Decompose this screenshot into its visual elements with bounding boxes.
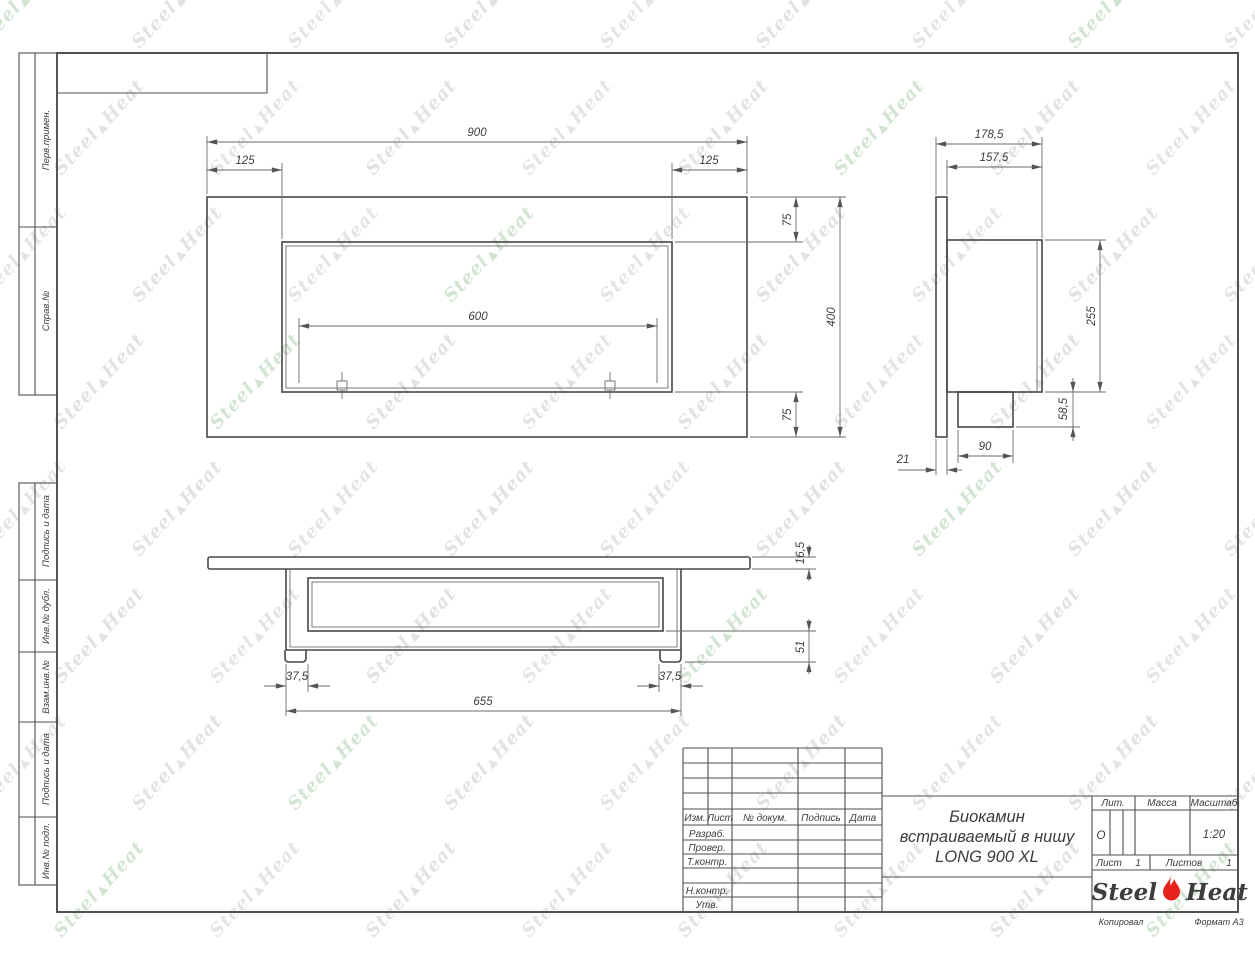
dim-bottom-base-width: 655	[473, 696, 493, 708]
dim-side-body-height: 255	[1086, 306, 1098, 327]
sheet-label: Лист	[1095, 858, 1122, 869]
scale-value: 1:20	[1203, 829, 1226, 841]
row-tkontr: Т.контр.	[687, 857, 727, 868]
dim-side-panel-thickness: 21	[896, 454, 910, 466]
lit-value: О	[1097, 830, 1106, 842]
row-utv: Утв.	[695, 900, 719, 911]
dim-front-left: 125	[235, 155, 255, 167]
margin-label-inv-podl: Инв.№ подл.	[41, 823, 52, 879]
mass-label: Масса	[1147, 798, 1177, 809]
dim-side-spout-height: 58,5	[1058, 397, 1070, 420]
row-razrab: Разраб.	[689, 828, 725, 840]
bottom-view-dimensions: 16,5 51 37,5 37,5 655	[264, 541, 816, 716]
lit-label: Лит.	[1100, 798, 1124, 809]
col-data: Дата	[849, 813, 877, 824]
sheet-value: 1	[1135, 858, 1141, 869]
front-view-dimensions: 900 125 125 600 75 400 75	[207, 127, 846, 437]
dim-front-top: 75	[782, 213, 794, 226]
logo-heat-text: Heat	[1185, 879, 1248, 906]
technical-drawing: Перв.примен. Справ.№ Подпись и дата Инв.…	[0, 0, 1255, 970]
title-block-text: Изм. Лист № докум. Подпись Дата Разраб. …	[684, 797, 1243, 927]
dim-front-height: 400	[826, 307, 838, 327]
dim-front-bottom: 75	[782, 408, 794, 421]
sheets-value: 1	[1226, 858, 1232, 869]
dim-side-spout-width: 90	[979, 441, 992, 453]
sheets-label: Листов	[1165, 858, 1202, 869]
dim-bottom-lower-height: 51	[795, 641, 807, 654]
bottom-view	[208, 557, 750, 662]
dim-side-body-depth: 157,5	[980, 152, 1009, 164]
col-list: Лист	[706, 813, 733, 824]
row-prover: Провер.	[688, 843, 725, 854]
col-izm: Изм.	[684, 813, 705, 824]
drawing-sheet: Steel▲HeatSteel▲HeatSteel▲HeatSteel▲Heat…	[0, 0, 1255, 970]
footer-format: Формат А3	[1194, 917, 1243, 927]
dim-bottom-right-offset: 37,5	[659, 671, 682, 683]
margin-label-podpis2: Подпись и дата	[41, 733, 52, 805]
dim-front-right: 125	[699, 155, 719, 167]
logo-steel-text: Steel	[1092, 879, 1158, 906]
dim-front-slot: 600	[468, 311, 488, 323]
doc-title-line2: встраиваемый в нишу	[900, 828, 1076, 846]
steelheat-logo: Steel Heat	[1092, 874, 1249, 906]
dim-bottom-left-offset: 37,5	[286, 671, 309, 683]
footer-copy: Копировал	[1099, 917, 1144, 927]
side-view-dimensions: 178,5 157,5 255 58,5 90 21	[896, 129, 1106, 475]
doc-title-line3: LONG 900 XL	[935, 848, 1039, 866]
margin-labels: Перв.примен. Справ.№ Подпись и дата Инв.…	[41, 110, 52, 879]
margin-label-sprav: Справ.№	[41, 291, 52, 332]
margin-label-podpis1: Подпись и дата	[41, 495, 52, 567]
flame-icon	[1163, 874, 1180, 901]
doc-title-line1: Биокамин	[949, 808, 1025, 826]
margin-label-perv: Перв.примен.	[41, 110, 52, 171]
sheet-frame	[19, 53, 1238, 912]
row-nkontr: Н.контр.	[686, 886, 728, 897]
col-docnum: № докум.	[743, 813, 787, 824]
col-podpis: Подпись	[801, 813, 841, 824]
scale-label: Масштаб	[1191, 797, 1238, 809]
dim-front-total: 900	[467, 127, 487, 139]
dim-bottom-plate-thickness: 16,5	[795, 541, 807, 564]
margin-label-vzam: Взам.инв.№	[41, 660, 52, 713]
dim-side-total-depth: 178,5	[975, 129, 1004, 141]
margin-label-inv-dubl: Инв.№ дубл.	[41, 588, 52, 644]
side-view	[936, 197, 1042, 437]
